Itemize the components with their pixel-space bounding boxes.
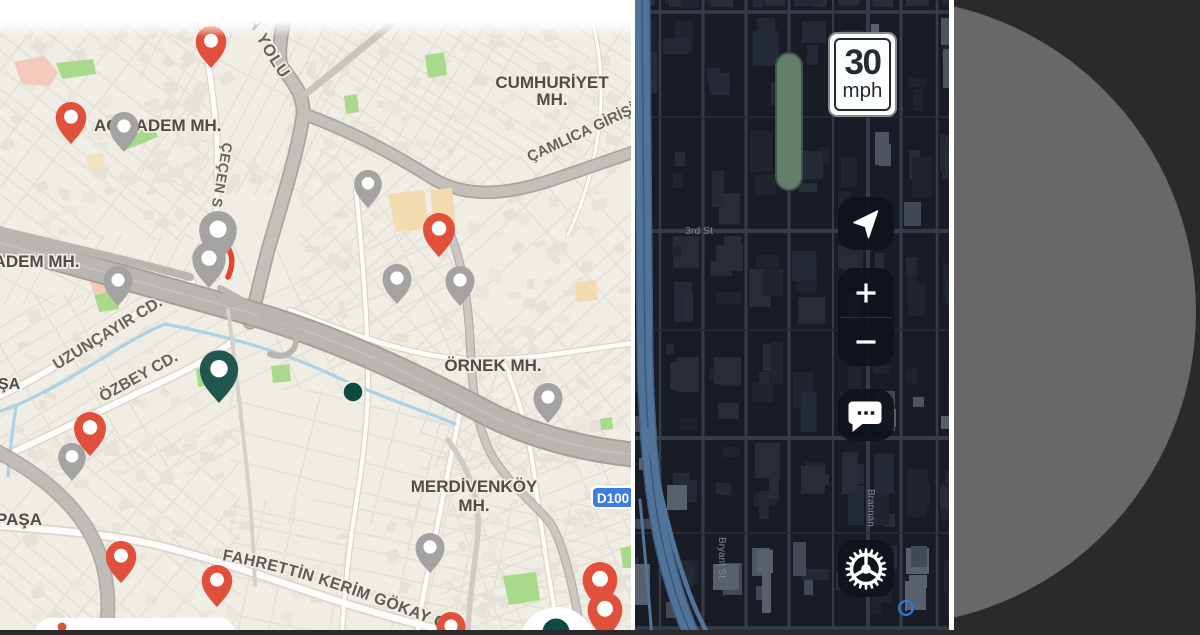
svg-text:MH.: MH.	[458, 496, 489, 515]
svg-text:ŞA: ŞA	[0, 376, 21, 393]
svg-text:D100: D100	[597, 491, 629, 506]
svg-text:MH.: MH.	[536, 90, 567, 109]
svg-text:Brannan: Brannan	[865, 489, 876, 527]
svg-text:MERDİVENKÖY: MERDİVENKÖY	[411, 477, 538, 496]
svg-text:ÖRNEK MH.: ÖRNEK MH.	[444, 356, 541, 375]
svg-text:ACIBADEM MH.: ACIBADEM MH.	[0, 252, 80, 271]
svg-text:3rd St: 3rd St	[685, 225, 713, 237]
svg-text:Bryant St: Bryant St	[716, 537, 727, 578]
svg-text:PAŞA: PAŞA	[0, 510, 42, 529]
